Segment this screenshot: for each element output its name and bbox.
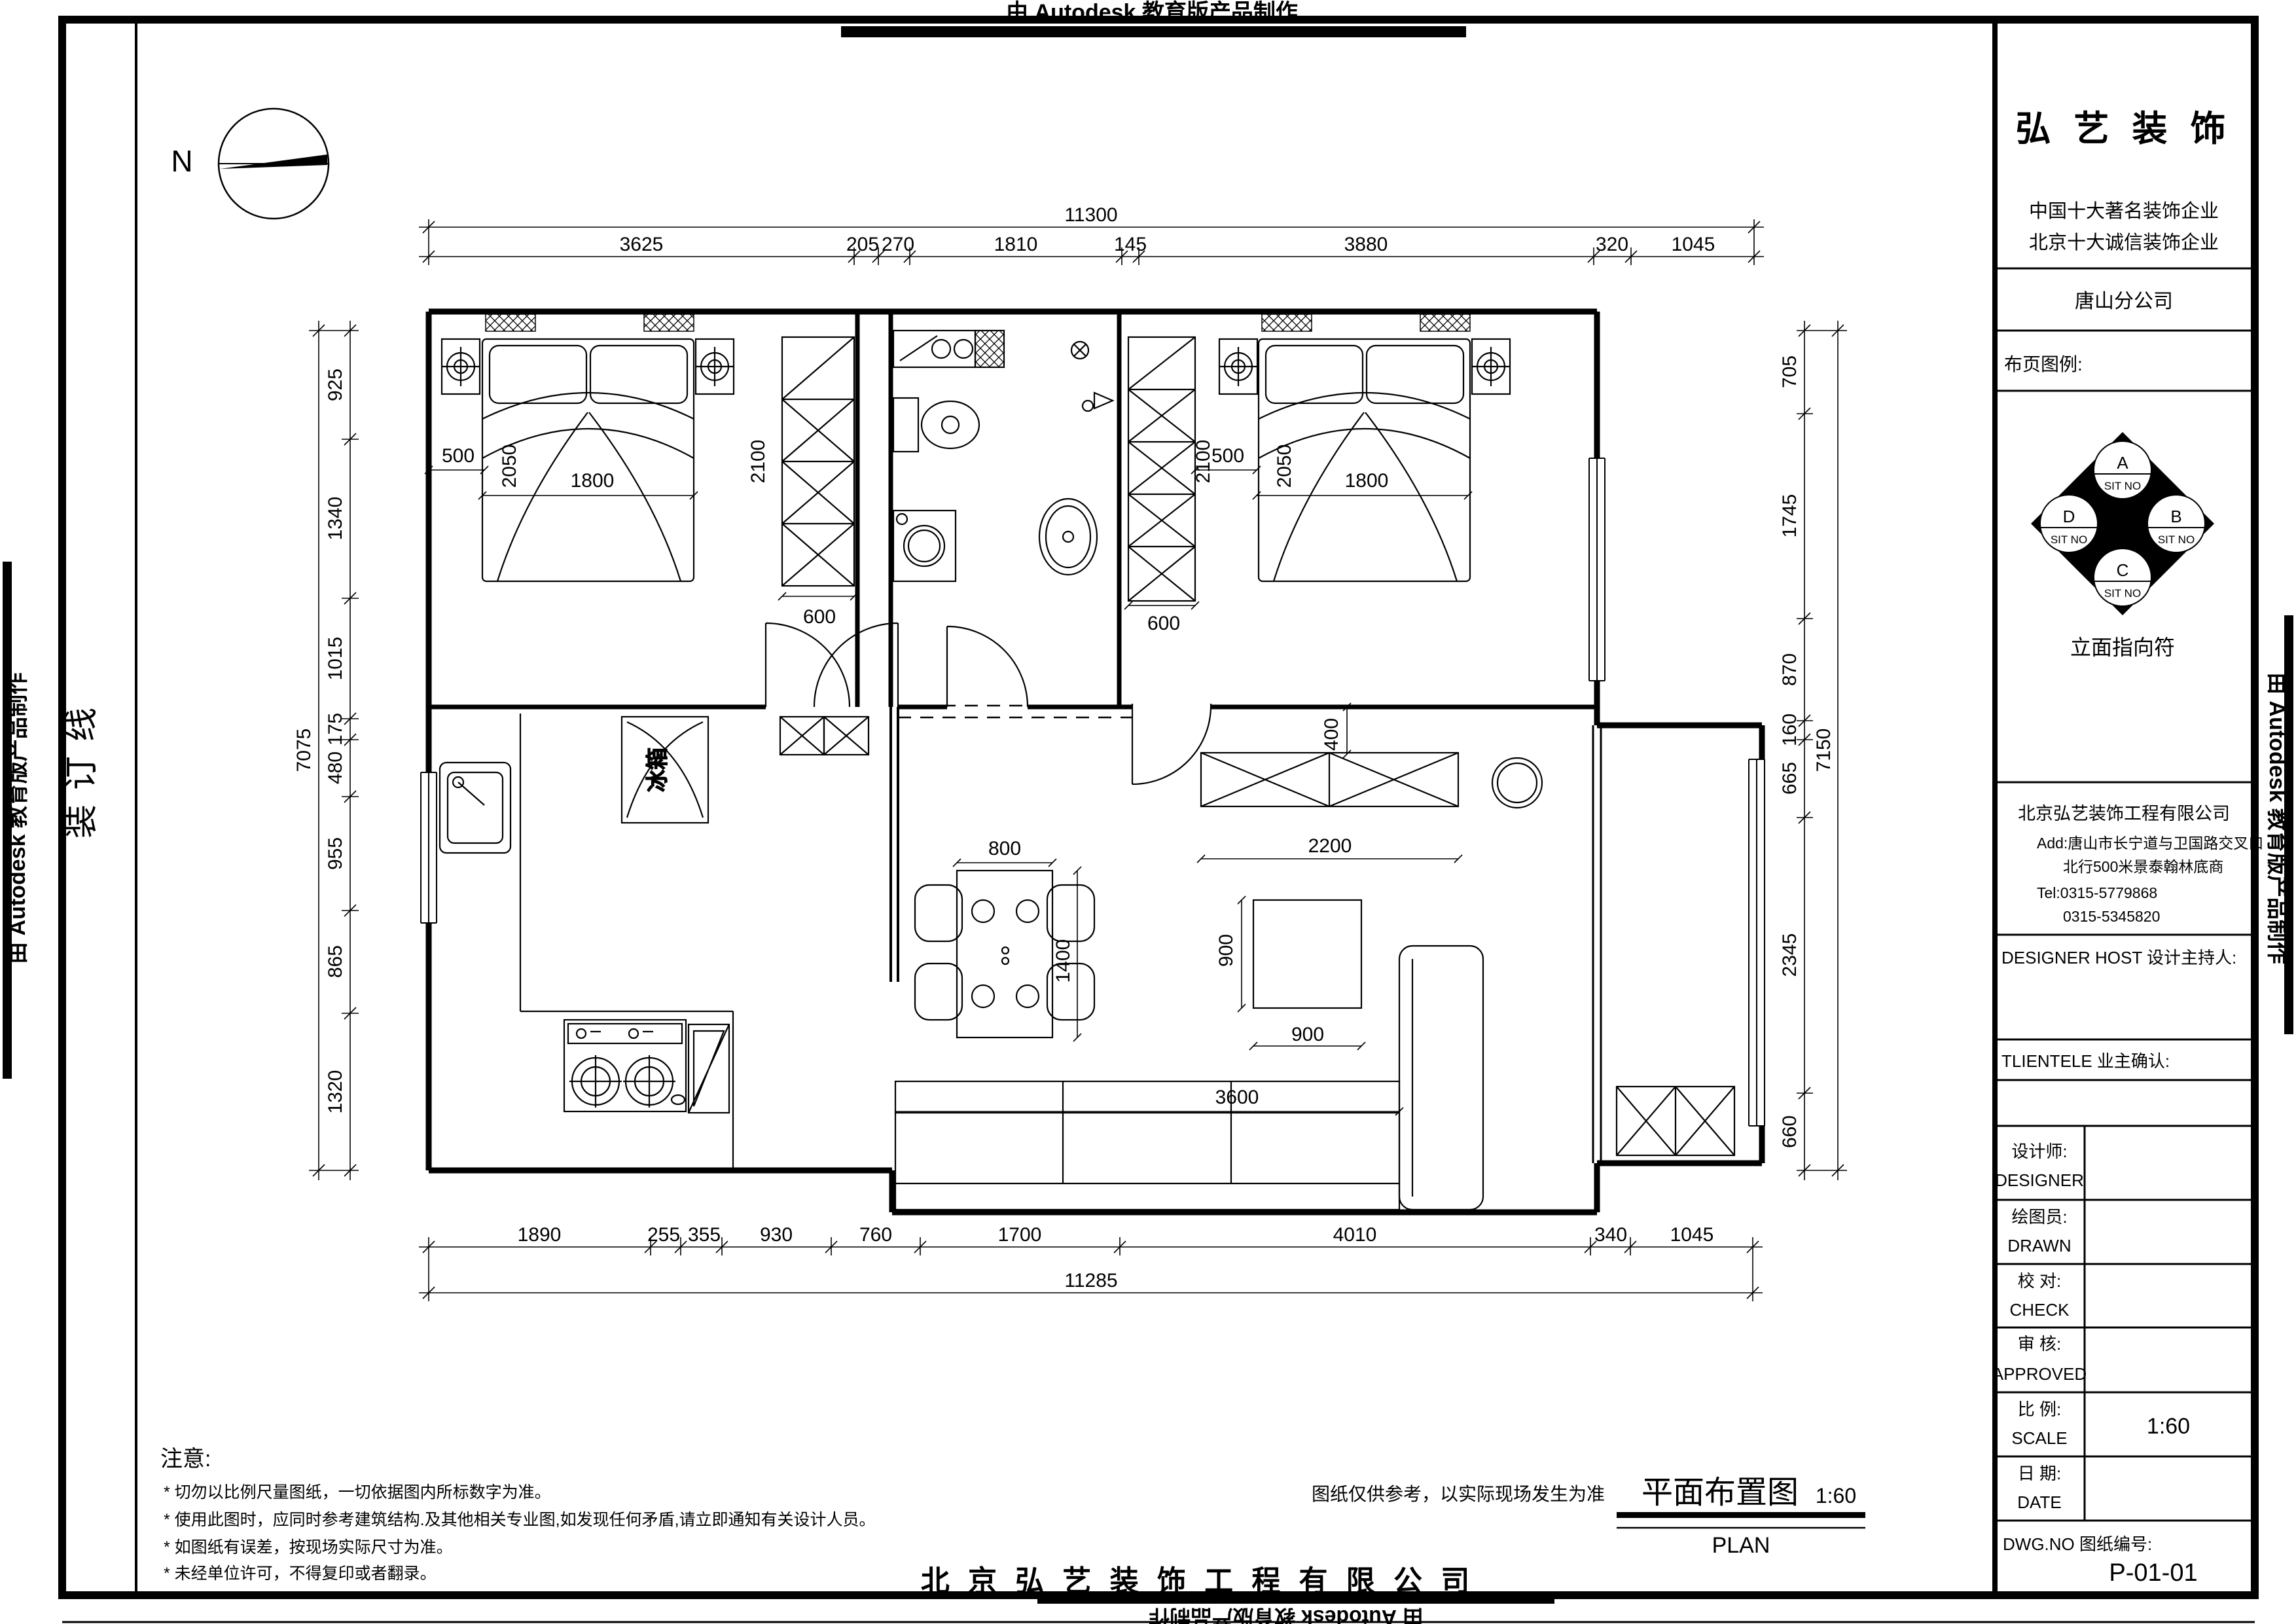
kitchen-sink — [440, 763, 511, 853]
bottom-autodesk-banner: 由 Autodesk 教育版产品制作 — [1037, 1595, 1554, 1624]
row-scale-value: 1:60 — [2147, 1414, 2190, 1439]
floor-plan: 冰箱 — [293, 204, 1847, 1301]
row-check-cn: 校 对: — [2018, 1271, 2061, 1291]
company-tel-1: Tel:0315-5779868 — [2037, 884, 2157, 901]
dim: 1015 — [325, 637, 346, 681]
north-label: N — [171, 144, 192, 178]
dim: 400 — [1321, 718, 1342, 751]
dim: 1320 — [325, 1070, 346, 1114]
pillow — [590, 346, 687, 403]
dim: 2345 — [1779, 933, 1801, 977]
notes-heading: 注意: — [160, 1447, 211, 1471]
vanity-counter — [893, 331, 975, 367]
dim: 1400 — [1052, 939, 1074, 983]
dim: 340 — [1594, 1224, 1627, 1246]
row-approved-en: APPROVED — [1992, 1364, 2087, 1384]
clientele-label: TLIENTELE 业主确认: — [2001, 1051, 2170, 1071]
company-slogan-1: 中国十大著名装饰企业 — [2029, 200, 2219, 222]
row-drawn-cn: 绘图员: — [2011, 1207, 2067, 1227]
dim: 2200 — [1308, 835, 1352, 857]
bedroom-window — [1589, 458, 1605, 681]
vanity-hatch — [975, 331, 1004, 367]
row-date-en: DATE — [2017, 1492, 2061, 1512]
kitchen-window — [421, 772, 437, 923]
row-date-cn: 日 期: — [2018, 1464, 2061, 1483]
dim: 2050 — [499, 444, 520, 488]
company-address-2: 北行500米景泰翰林底商 — [2063, 858, 2223, 875]
sofa — [895, 1081, 1399, 1210]
dim: 3600 — [1215, 1087, 1259, 1108]
shower-mixer — [1083, 393, 1113, 411]
wardrobe — [1128, 337, 1195, 601]
binding-line-label: 装订线 — [63, 693, 101, 839]
row-designer-cn: 设计师: — [2011, 1142, 2067, 1161]
dim: 320 — [1596, 234, 1628, 255]
sit-no: SIT NO — [2104, 587, 2141, 600]
kitchen-furniture: 冰箱 — [440, 713, 869, 1168]
title-block: 弘 艺 装 饰 中国十大著名装饰企业 北京十大诚信装饰企业 唐山分公司 布页图例… — [1992, 24, 2264, 1591]
right-bedroom-furniture — [1128, 337, 1510, 601]
drawing-sheet: 由 Autodesk 教育版产品制作 由 Autodesk 教育版产品制作 由 … — [0, 0, 2296, 1624]
left-bedroom-door — [766, 623, 850, 707]
head-wall-hatch — [1420, 314, 1470, 331]
indicator-c: C — [2117, 560, 2129, 580]
footer-titles: 图纸仅供参考，以实际现场发生为准 平面布置图 1:60 PLAN 北 京 弘 艺… — [921, 1475, 1865, 1597]
plan-title: 平面布置图 — [1641, 1475, 1799, 1510]
north-compass: N — [171, 109, 329, 219]
bathroom-fixtures — [893, 331, 1113, 581]
fridge-label: 冰箱 — [645, 748, 670, 792]
company-tel-2: 0315-5345820 — [2063, 908, 2160, 925]
right-autodesk-banner: 由 Autodesk 教育版产品制作 — [2265, 615, 2293, 1034]
dim: 255 — [647, 1224, 680, 1246]
balcony-divider — [1593, 725, 1601, 1163]
chair — [1047, 885, 1094, 941]
legend-label: 布页图例: — [2004, 354, 2083, 374]
dim: 175 — [325, 713, 346, 746]
pillow — [490, 346, 586, 403]
dim: 1800 — [571, 470, 615, 492]
bottom-banner-text: 由 Autodesk 教育版产品制作 — [1149, 1606, 1424, 1624]
stool — [1492, 758, 1542, 808]
dim: 500 — [1211, 445, 1244, 467]
indicator-d: D — [2063, 507, 2075, 526]
doors — [766, 623, 1211, 784]
elevation-indicator: A B C D SIT NO SIT NO SIT NO SIT NO — [2031, 432, 2214, 615]
dim: 1890 — [518, 1224, 562, 1246]
dim: 925 — [325, 369, 346, 401]
dim: 2100 — [747, 440, 769, 484]
head-wall-hatch — [1262, 314, 1312, 331]
indicator-a: A — [2117, 453, 2128, 473]
dim: 665 — [1779, 762, 1801, 795]
kitchen-divider-wall — [891, 707, 898, 982]
dimension-labels: 11300 3625 205 270 1810 145 3880 320 104… — [293, 204, 1835, 1291]
plan-title-en: PLAN — [1712, 1533, 1770, 1558]
dim: 900 — [1215, 934, 1237, 967]
dim: 205 — [846, 234, 879, 255]
dim: 355 — [688, 1224, 721, 1246]
balcony-window — [1749, 759, 1765, 1126]
company-slogan-2: 北京十大诚信装饰企业 — [2029, 232, 2219, 253]
indicator-b: B — [2170, 507, 2181, 526]
dim: 270 — [882, 234, 914, 255]
right-banner-text: 由 Autodesk 教育版产品制作 — [2265, 672, 2289, 964]
compass-needle — [220, 154, 327, 169]
row-scale-cn: 比 例: — [2018, 1399, 2061, 1419]
top-banner-text: 由 Autodesk 教育版产品制作 — [1006, 0, 1298, 25]
branch-name: 唐山分公司 — [2075, 291, 2173, 312]
bathroom-door — [947, 626, 1028, 707]
dim: 1810 — [994, 234, 1038, 255]
notes-block: 注意: * 切勿以比例尺量图纸，一切依据图内所标数字为准。 * 使用此图时，应同… — [160, 1447, 876, 1583]
dim: 3625 — [620, 234, 664, 255]
dim: 705 — [1779, 355, 1801, 388]
dim: 760 — [859, 1224, 892, 1246]
sheet-frame — [62, 20, 2255, 1622]
toilet-tank — [893, 398, 918, 452]
dim: 600 — [803, 606, 836, 628]
dwg-no-label: DWG.NO 图纸编号: — [2003, 1534, 2152, 1554]
row-designer-en: DESIGNER — [1995, 1170, 2084, 1190]
row-scale-en: SCALE — [2011, 1428, 2067, 1448]
row-drawn-en: DRAWN — [2007, 1236, 2071, 1255]
exterior-walls — [429, 312, 1762, 1212]
plan-scale: 1:60 — [1816, 1484, 1856, 1507]
chair — [915, 964, 962, 1020]
head-wall-hatch — [644, 314, 694, 331]
pedestal-sink — [1039, 499, 1097, 575]
dim: 145 — [1114, 234, 1147, 255]
company-logo: 弘 艺 装 饰 — [2015, 109, 2232, 149]
pillow — [1266, 346, 1363, 403]
dim: 3880 — [1344, 234, 1388, 255]
dim: 1045 — [1670, 1224, 1714, 1246]
dim: 2100 — [1193, 440, 1214, 484]
company-fullname: 北京弘艺装饰工程有限公司 — [2018, 804, 2230, 823]
dim: 660 — [1779, 1115, 1801, 1148]
note-item: * 未经单位许可，不得复印或者翻录。 — [164, 1564, 437, 1583]
dim: 1745 — [1779, 494, 1801, 538]
dim: 955 — [325, 837, 346, 870]
dim: 11300 — [1064, 204, 1117, 226]
dim: 500 — [442, 445, 475, 467]
washing-machine — [893, 511, 956, 581]
note-item: * 切勿以比例尺量图纸，一切依据图内所标数字为准。 — [164, 1483, 551, 1502]
dim: 7075 — [293, 729, 315, 772]
interior-walls — [429, 312, 1597, 707]
row-check-en: CHECK — [2009, 1300, 2070, 1320]
dim: 600 — [1147, 613, 1180, 634]
dim: 160 — [1779, 713, 1801, 746]
coffee-table — [1253, 900, 1361, 1008]
sit-no: SIT NO — [2051, 533, 2087, 546]
dim: 1800 — [1345, 470, 1389, 492]
dim: 800 — [988, 838, 1021, 859]
dim: 1045 — [1672, 234, 1715, 255]
footer-company: 北 京 弘 艺 装 饰 工 程 有 限 公 司 — [921, 1565, 1475, 1597]
elevation-indicator-caption: 立面指向符 — [2070, 636, 2175, 659]
row-approved-cn: 审 核: — [2018, 1334, 2061, 1354]
pillow — [1367, 346, 1463, 403]
dim: 7150 — [1813, 729, 1835, 772]
disclaimer: 图纸仅供参考，以实际现场发生为准 — [1312, 1484, 1605, 1504]
left-autodesk-banner: 由 Autodesk 教育版产品制作 — [3, 562, 30, 1079]
head-wall-hatch — [486, 314, 535, 331]
dim: 1340 — [325, 497, 346, 541]
sit-no: SIT NO — [2104, 480, 2141, 492]
dim: 930 — [760, 1224, 793, 1246]
note-item: * 如图纸有误差，按现场实际尺寸为准。 — [164, 1538, 453, 1557]
sit-no: SIT NO — [2158, 533, 2195, 546]
dim: 4010 — [1333, 1224, 1377, 1246]
dwg-no-value: P-01-01 — [2109, 1559, 2197, 1587]
designer-host-label: DESIGNER HOST 设计主持人: — [2001, 948, 2236, 967]
dim: 11285 — [1064, 1270, 1117, 1291]
note-item: * 使用此图时，应同时参考建筑结构.及其他相关专业图,如发现任何矛盾,请立即通知… — [164, 1511, 876, 1529]
living-furniture — [895, 753, 1734, 1210]
dim: 2050 — [1274, 444, 1295, 488]
company-address-1: Add:唐山市长宁道与卫国路交叉口 — [2037, 835, 2263, 852]
right-bedroom-door — [1132, 704, 1211, 784]
chair — [915, 885, 962, 941]
toilet-bowl — [922, 401, 979, 448]
dim: 865 — [325, 945, 346, 978]
dim: 480 — [325, 751, 346, 784]
left-banner-text: 由 Autodesk 教育版产品制作 — [5, 672, 30, 964]
dim: 1700 — [998, 1224, 1042, 1246]
dim: 900 — [1291, 1024, 1324, 1045]
dim: 870 — [1779, 653, 1801, 686]
